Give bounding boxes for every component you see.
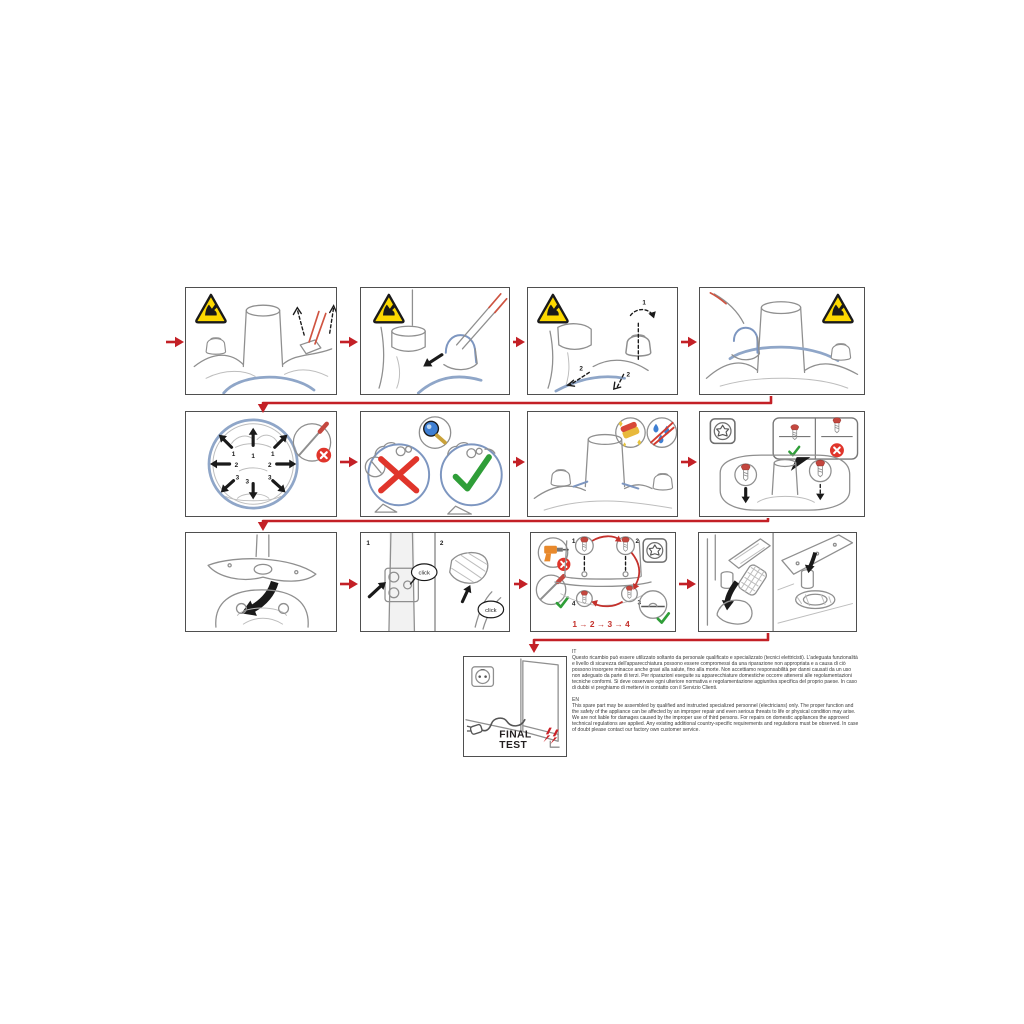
power-socket-icon bbox=[472, 667, 494, 687]
click-label: click bbox=[485, 608, 496, 614]
warning-sharp-edges-icon bbox=[823, 295, 852, 322]
step-panel-insert-terminal bbox=[360, 287, 510, 395]
flow-arrow-r1-1 bbox=[340, 337, 358, 347]
step-panel-insert-screws bbox=[699, 411, 865, 517]
ok-check-icon bbox=[456, 457, 489, 488]
legal-en-body: This spare part may be assembled by qual… bbox=[572, 703, 860, 733]
inspect-magnifier-icon bbox=[419, 417, 450, 448]
step-panel-place-cover bbox=[185, 532, 337, 632]
final-test-panel: FINAL TEST bbox=[463, 656, 567, 757]
position-label: 2 bbox=[268, 462, 272, 469]
wires-pull-up bbox=[293, 306, 336, 354]
not-allowed-x-icon bbox=[830, 443, 844, 457]
connector-click: click bbox=[369, 533, 437, 631]
sequence-label: 1 → 2 → 3 → 4 bbox=[572, 619, 630, 629]
position-label: 1 bbox=[271, 451, 275, 458]
torx-screw-icon bbox=[710, 419, 735, 444]
step-panel-check-seal bbox=[360, 411, 510, 517]
lightning-bolts-icon bbox=[543, 728, 558, 745]
step-panel-fit-filter bbox=[698, 532, 857, 632]
position-label: 3 bbox=[236, 475, 240, 482]
step-panel-wires-up bbox=[185, 287, 337, 395]
cell-label: 1 bbox=[366, 540, 370, 547]
torx-screw-icon bbox=[643, 539, 666, 562]
position-label: 1 bbox=[251, 453, 255, 460]
final-test-word2: TEST bbox=[499, 740, 527, 751]
flow-arrow-r3-1 bbox=[340, 579, 358, 589]
warning-sharp-edges-icon bbox=[374, 295, 403, 322]
step-number: 2 bbox=[579, 365, 583, 372]
step-panel-screw-sequence: 1 2 3 4 1 → 2 → 3 → 4 bbox=[530, 532, 676, 632]
flow-arrows bbox=[0, 0, 1024, 1024]
press-arrows: 1 1 1 2 2 3 3 3 bbox=[210, 428, 296, 500]
sponge-clean-icon bbox=[616, 418, 645, 447]
step-panel-press-seal: 1 1 1 2 2 3 3 3 bbox=[185, 411, 337, 517]
final-test-word1: FINAL bbox=[499, 729, 531, 740]
no-screwdriver-pry-icon bbox=[293, 424, 331, 463]
position-label: 1 bbox=[232, 451, 236, 458]
cell-label: 2 bbox=[440, 540, 444, 547]
filter-click: click bbox=[450, 553, 504, 629]
correct-assembly bbox=[441, 443, 502, 514]
cap-rotate: 1 bbox=[626, 300, 658, 361]
flush-seat-ok-icon bbox=[639, 591, 668, 623]
step-panel-clean-dry bbox=[527, 411, 678, 517]
place-down-arrow bbox=[238, 582, 275, 621]
flow-arrow-r1-3 bbox=[681, 337, 697, 347]
position-label: 3 bbox=[245, 479, 249, 486]
flow-arrow-r3-2 bbox=[514, 579, 528, 589]
no-water-icon bbox=[647, 418, 676, 447]
hand-screwdriver-ok-icon bbox=[536, 575, 567, 607]
legal-it-body: Questo ricambio può essere utilizzato so… bbox=[572, 655, 860, 691]
flow-arrow-r2-2 bbox=[513, 457, 525, 467]
warning-sharp-edges-icon bbox=[538, 295, 567, 322]
screw-number: 4 bbox=[572, 601, 576, 608]
flow-arrow-r3-3 bbox=[679, 579, 696, 589]
flow-arrow-entry bbox=[166, 337, 184, 347]
cable-route: 2 2 bbox=[556, 360, 648, 391]
wires-insert bbox=[418, 294, 506, 393]
step-number: 2 bbox=[627, 371, 631, 378]
sump-illustration bbox=[534, 435, 672, 511]
flow-return-2 bbox=[258, 518, 768, 531]
wrong-assembly bbox=[365, 443, 429, 512]
position-label: 2 bbox=[235, 462, 239, 469]
spray-arm-filter bbox=[778, 535, 852, 623]
screw-number: 2 bbox=[636, 538, 640, 545]
legal-text-block: IT Questo ricambio può essere utilizzato… bbox=[572, 649, 860, 739]
flow-arrow-r1-2 bbox=[513, 337, 525, 347]
step-panel-fit-cap: 1 2 2 bbox=[527, 287, 678, 395]
screw-number: 1 bbox=[572, 538, 576, 545]
warning-sharp-edges-icon bbox=[196, 295, 225, 322]
flow-arrow-r2-3 bbox=[681, 457, 697, 467]
instruction-sheet: 1 2 2 bbox=[0, 0, 1024, 1024]
flow-arrow-r2-1 bbox=[340, 457, 358, 467]
click-label: click bbox=[419, 571, 430, 577]
position-label: 3 bbox=[268, 475, 272, 482]
not-allowed-x-icon bbox=[381, 459, 416, 490]
filter-insert bbox=[707, 535, 770, 625]
cover-plate bbox=[208, 535, 316, 581]
sump-pocket bbox=[216, 590, 308, 627]
sump-illustration bbox=[720, 455, 850, 510]
step-panel-click-connector: 1 2 click click bbox=[360, 532, 510, 632]
step-number: 1 bbox=[642, 300, 646, 307]
step-panel-wiring-done bbox=[699, 287, 865, 395]
screw-positions: 1 2 3 4 bbox=[572, 536, 642, 608]
